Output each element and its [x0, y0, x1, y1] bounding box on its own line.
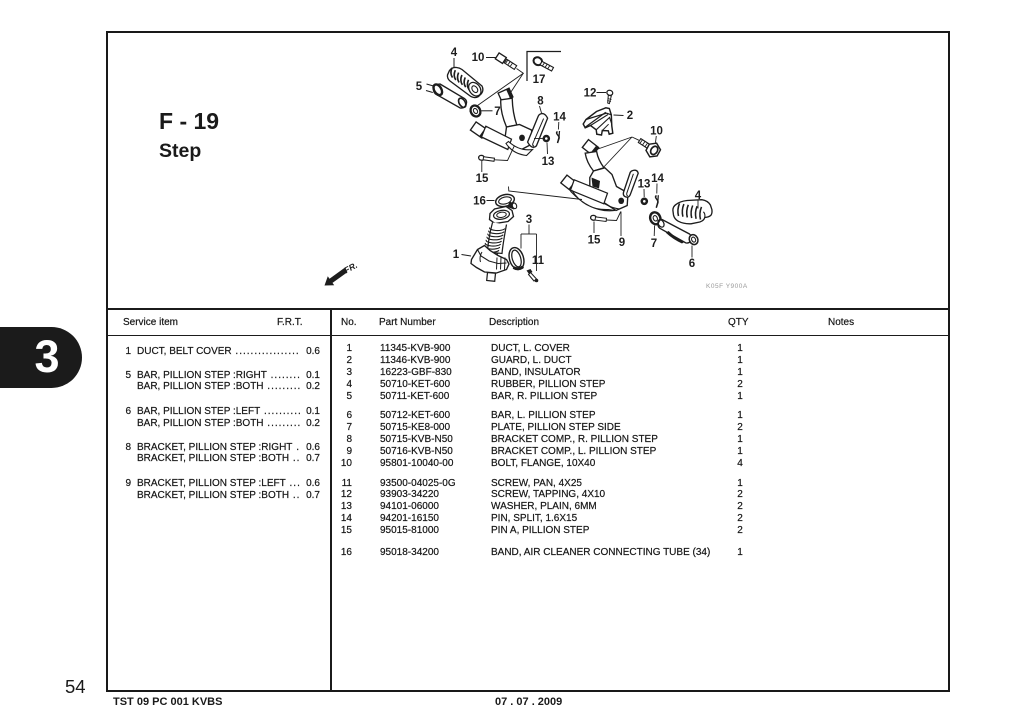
svg-text:FR.: FR.	[342, 260, 359, 275]
svg-text:8: 8	[537, 96, 544, 108]
svg-text:17: 17	[533, 74, 546, 86]
svg-text:7: 7	[651, 238, 657, 250]
svg-text:2: 2	[627, 110, 633, 122]
svg-text:3: 3	[526, 214, 532, 226]
svg-text:13: 13	[638, 179, 651, 191]
svg-text:15: 15	[588, 235, 601, 247]
svg-text:5: 5	[416, 81, 423, 93]
svg-text:16: 16	[473, 196, 486, 208]
svg-text:4: 4	[451, 47, 458, 59]
svg-text:14: 14	[651, 173, 664, 185]
svg-text:10: 10	[650, 126, 663, 138]
svg-text:7: 7	[494, 106, 500, 118]
svg-text:12: 12	[584, 88, 597, 100]
svg-text:K05F Y900A: K05F Y900A	[706, 283, 748, 290]
svg-text:14: 14	[553, 112, 566, 124]
svg-text:11: 11	[532, 255, 545, 267]
svg-text:15: 15	[476, 173, 489, 185]
svg-text:10: 10	[472, 52, 485, 64]
svg-text:1: 1	[453, 249, 460, 261]
svg-text:13: 13	[542, 156, 555, 168]
svg-text:6: 6	[689, 258, 695, 270]
svg-text:9: 9	[619, 237, 625, 249]
